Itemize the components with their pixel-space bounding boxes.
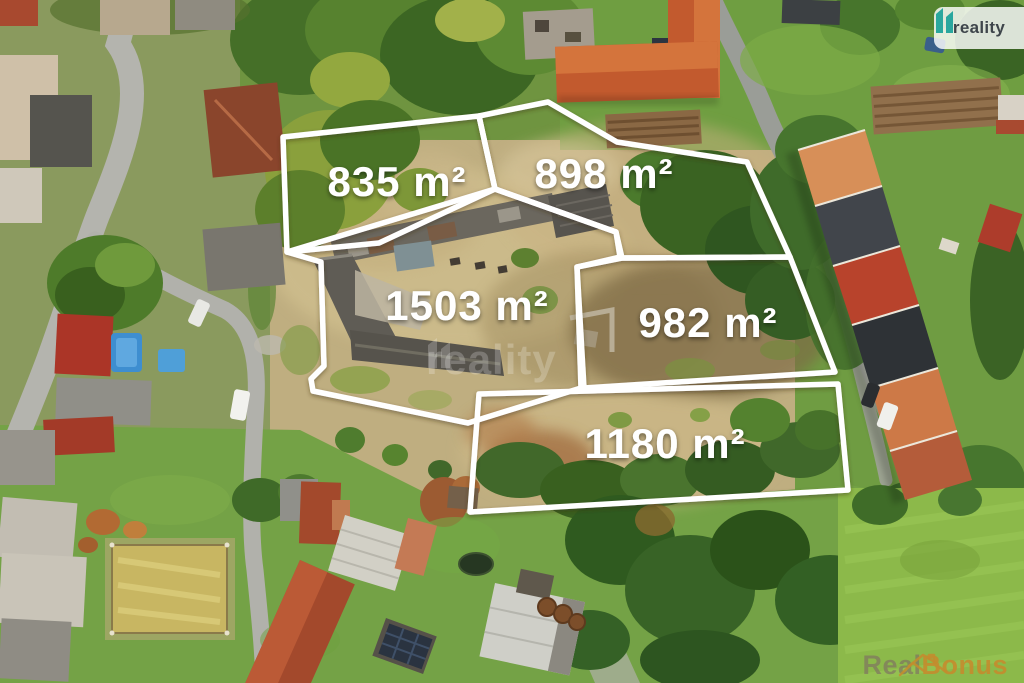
- plot-area-label-898: 898 m²: [534, 150, 673, 197]
- plot-area-label-982: 982 m²: [638, 299, 777, 346]
- plot-area-label-1503: 1503 m²: [385, 282, 548, 329]
- plot-area-label-1180: 1180 m²: [584, 420, 745, 467]
- corner-watermark-roofs-icon: [898, 652, 964, 678]
- plot-area-label-835: 835 m²: [327, 158, 466, 205]
- aerial-photo: 835 m² 898 m² 1503 m² 982 m² 1180 m²: [0, 0, 1024, 683]
- agency-logo-badge: reality: [934, 7, 1024, 49]
- agency-logo-icon: [934, 7, 956, 33]
- corner-watermark: RealBonus: [862, 652, 1008, 679]
- aerial-photo-listing: 835 m² 898 m² 1503 m² 982 m² 1180 m² rea…: [0, 0, 1024, 683]
- agency-logo-text: reality: [953, 18, 1005, 38]
